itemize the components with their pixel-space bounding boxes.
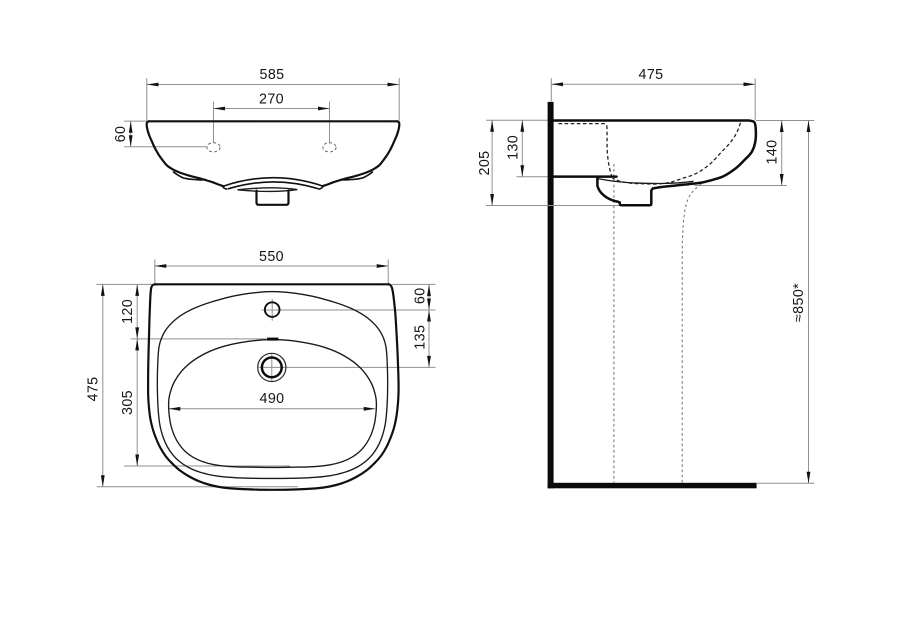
svg-text:205: 205: [477, 150, 493, 175]
svg-text:60: 60: [412, 287, 428, 304]
svg-text:135: 135: [413, 325, 429, 350]
svg-text:≈850*: ≈850*: [791, 283, 807, 322]
svg-text:550: 550: [259, 249, 284, 265]
svg-text:120: 120: [120, 299, 136, 324]
svg-text:140: 140: [765, 139, 781, 164]
svg-text:490: 490: [259, 391, 284, 407]
svg-text:305: 305: [120, 390, 136, 415]
svg-text:585: 585: [259, 67, 284, 83]
svg-text:270: 270: [259, 92, 284, 108]
svg-text:475: 475: [86, 376, 102, 401]
svg-text:130: 130: [506, 135, 522, 160]
svg-text:475: 475: [638, 67, 663, 83]
svg-text:60: 60: [113, 126, 129, 143]
